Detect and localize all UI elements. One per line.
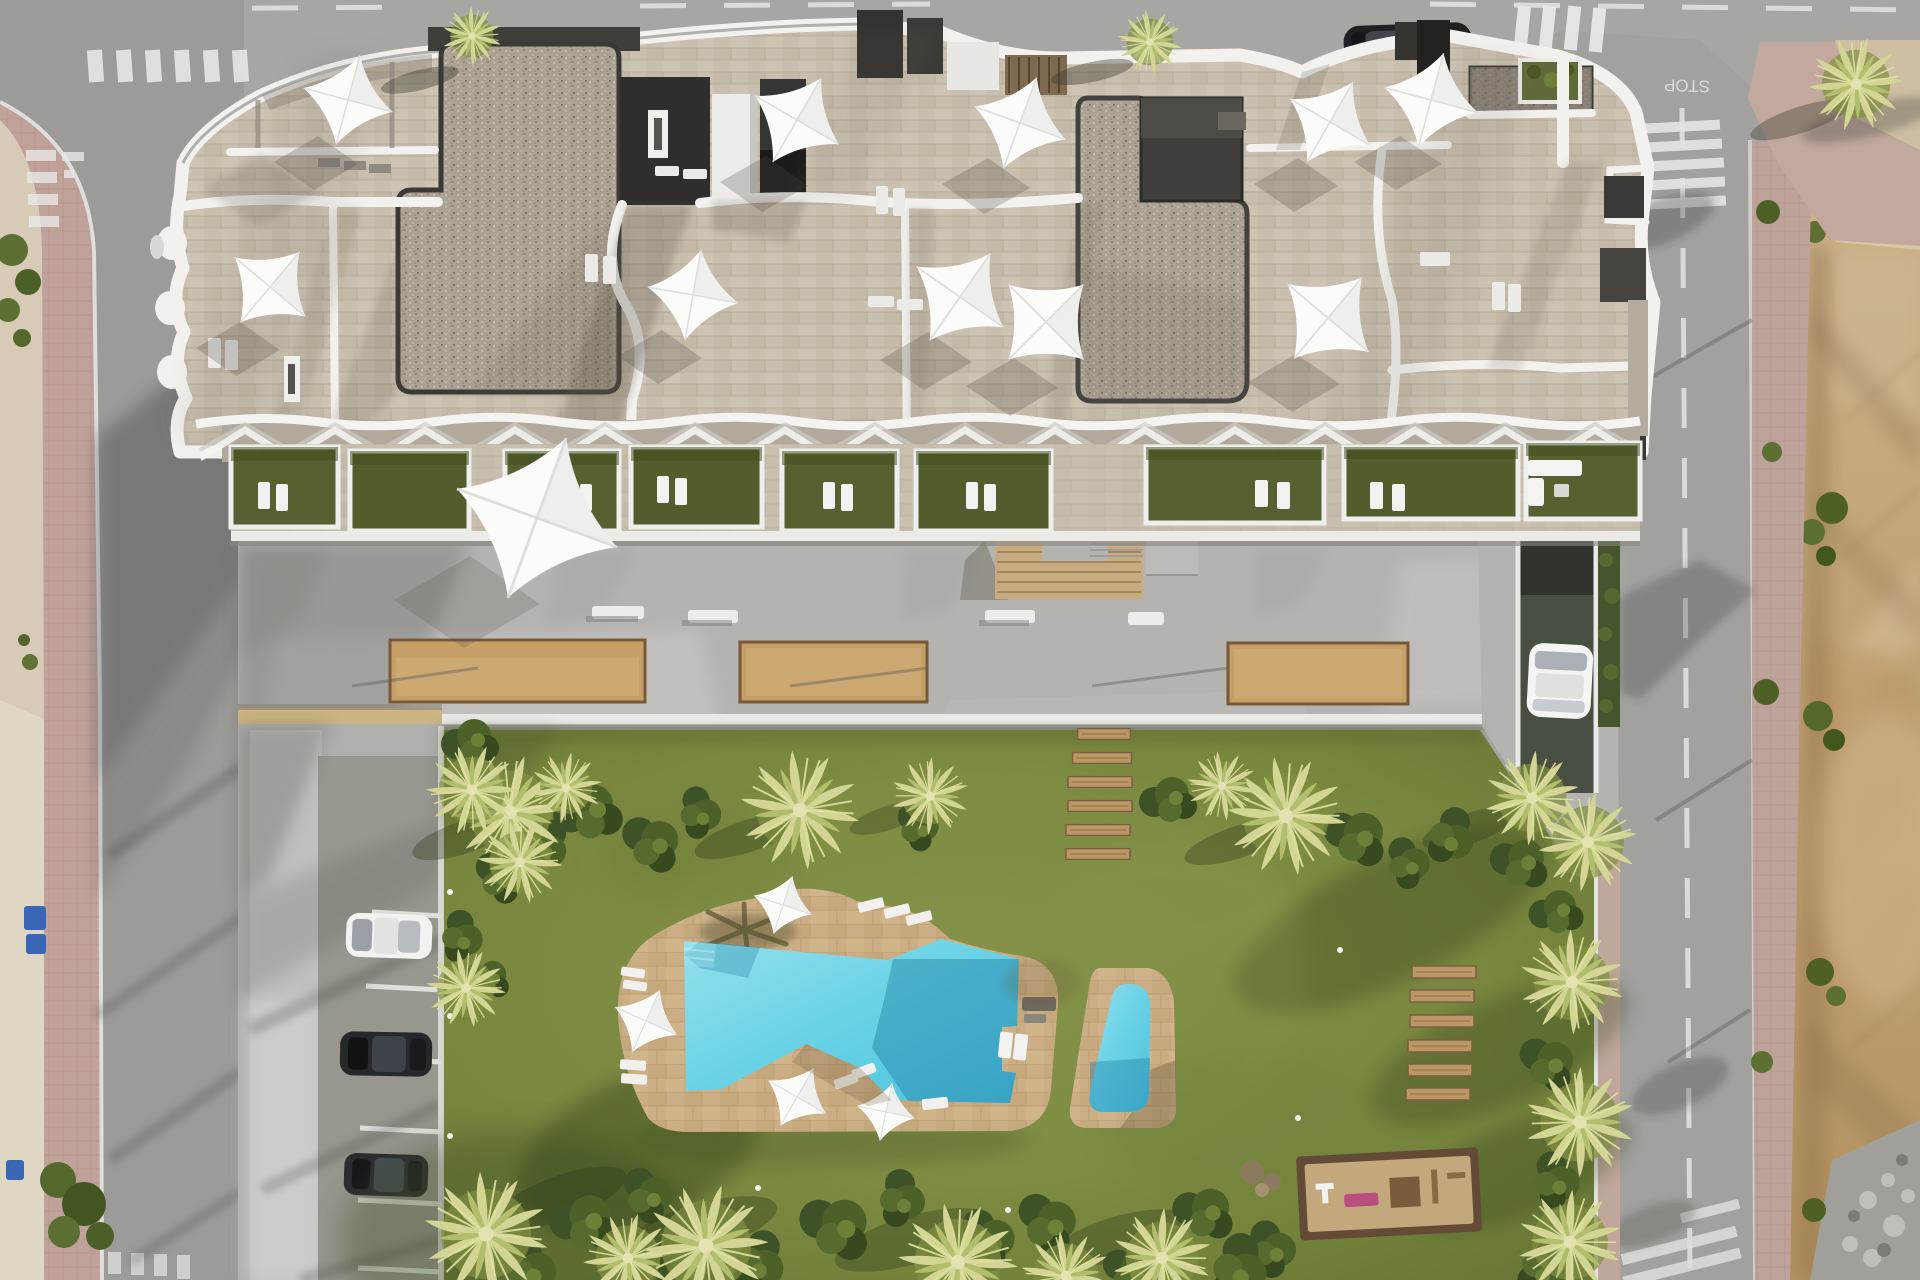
svg-text:STOP: STOP (1664, 75, 1711, 96)
